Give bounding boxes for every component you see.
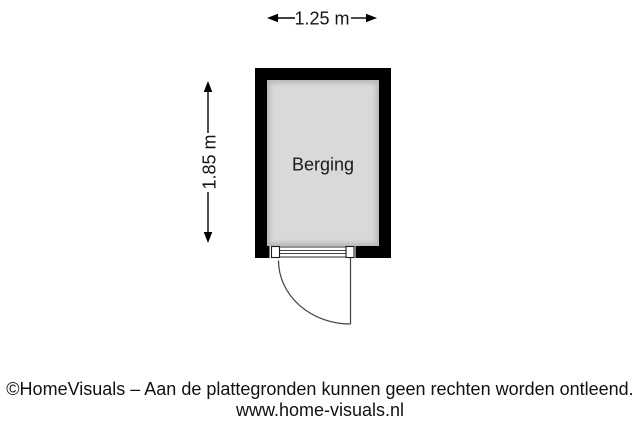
footer-disclaimer: ©HomeVisuals – Aan de plattegronden kunn…	[0, 379, 640, 400]
room-label: Berging	[292, 155, 354, 175]
door-threshold	[272, 247, 354, 257]
floor-plan: 1.25 m 1.85 m Berging	[0, 0, 640, 372]
door-post-left	[272, 247, 280, 258]
width-dimension-label: 1.25 m	[294, 9, 349, 29]
arrow-left-icon	[267, 14, 278, 23]
footer-website: www.home-visuals.nl	[0, 400, 640, 421]
arrow-up-icon	[204, 81, 213, 92]
floorplan-page: 1.25 m 1.85 m Berging	[0, 0, 640, 430]
arrow-down-icon	[204, 232, 213, 243]
arrow-right-icon	[366, 14, 377, 23]
height-dimension: 1.85 m	[200, 81, 220, 243]
door-swing-arc	[279, 261, 351, 325]
door	[270, 246, 356, 324]
door-post-right	[346, 247, 354, 258]
footer: ©HomeVisuals – Aan de plattegronden kunn…	[0, 379, 640, 421]
width-dimension: 1.25 m	[267, 9, 377, 29]
room-berging: Berging	[255, 68, 391, 258]
height-dimension-label: 1.85 m	[200, 134, 220, 189]
